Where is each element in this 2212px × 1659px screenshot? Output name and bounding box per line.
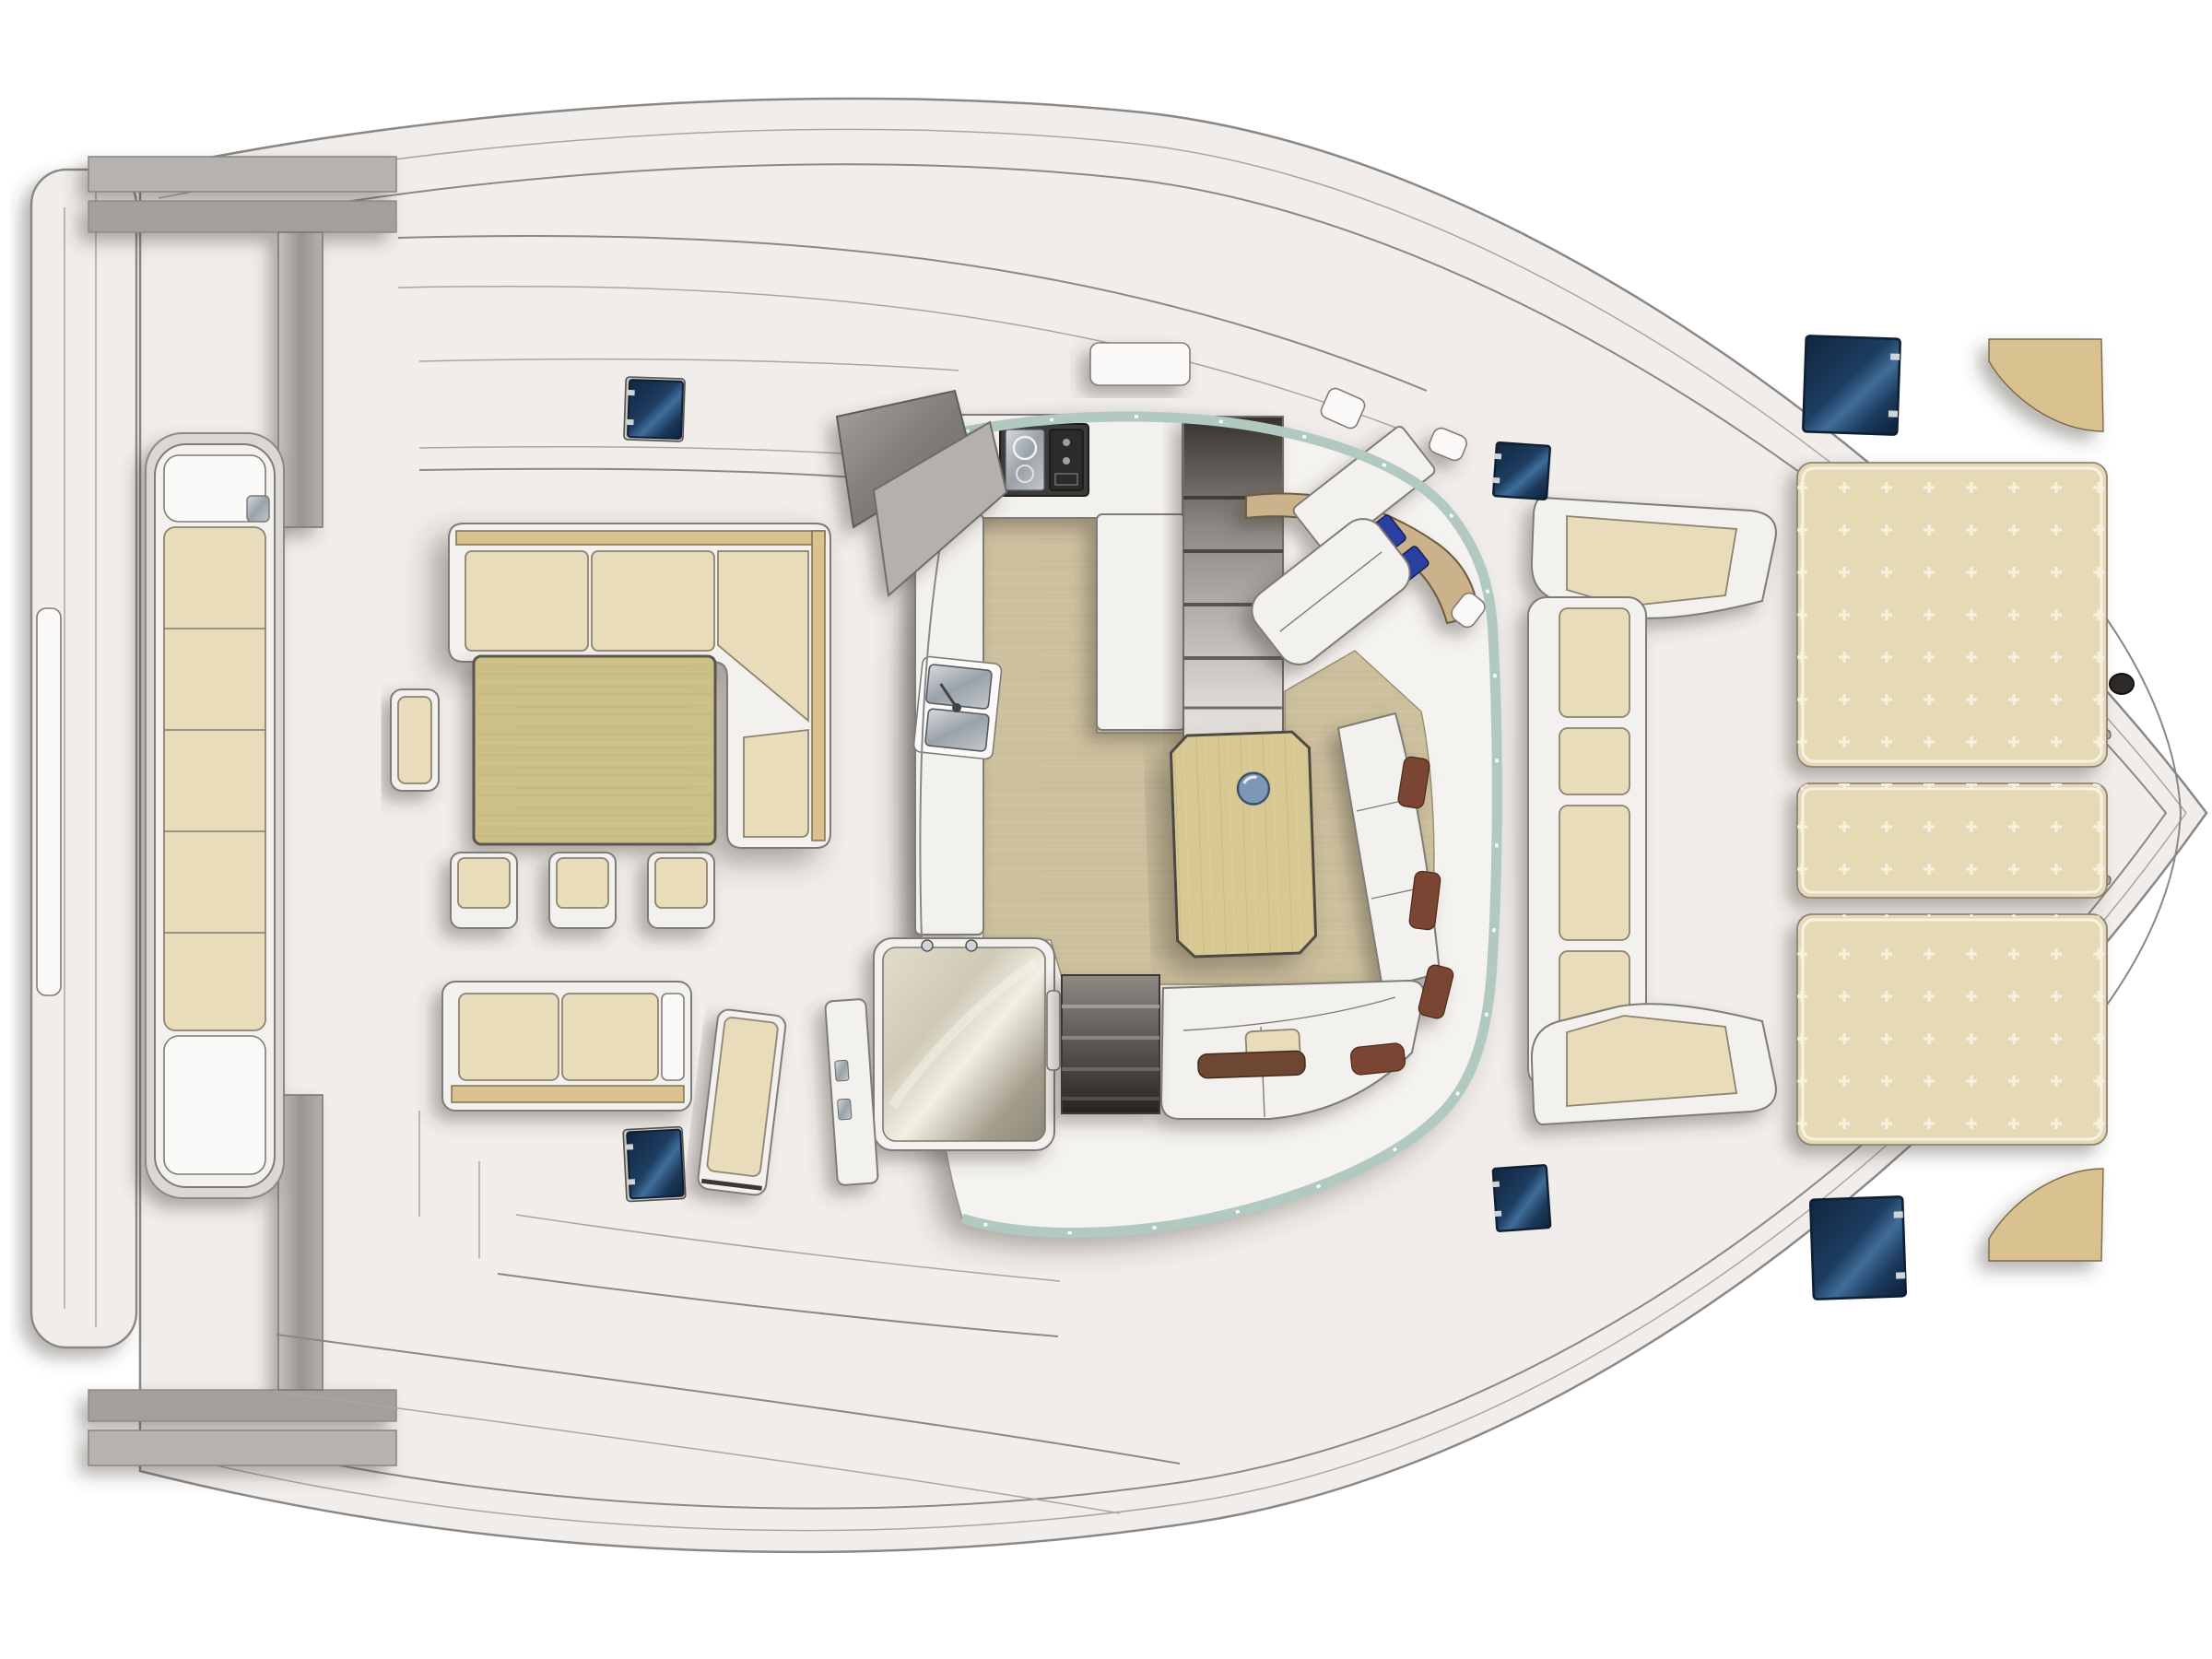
dining-table	[474, 656, 715, 844]
shower-tap	[922, 940, 933, 951]
roof-vent-box	[1090, 343, 1190, 385]
galley-inner-counter	[1097, 514, 1185, 730]
companionway-port	[1183, 417, 1283, 739]
sunpad-buttons	[1797, 783, 2107, 898]
bench-side-cushion	[1559, 806, 1630, 940]
stairwell	[1183, 417, 1283, 739]
hatch-cabin-front-port	[1491, 442, 1550, 500]
davit-beam-inner	[88, 1390, 396, 1421]
hatch-hinge	[1894, 1211, 1903, 1218]
sink-basin	[925, 665, 992, 710]
hatch-foredeck-port	[1803, 335, 1900, 434]
wet-room-door-slit	[1047, 991, 1060, 1070]
transom-bench	[146, 433, 284, 1198]
davit-beam	[88, 1430, 396, 1465]
bow-knob-fitting	[2110, 674, 2134, 694]
bench-top-arm-cushion	[1567, 516, 1736, 606]
davit-post	[278, 232, 323, 527]
sofa-wood-rail	[812, 531, 825, 841]
stool-cushion	[458, 858, 510, 908]
hatch-hinge	[628, 390, 635, 395]
davit-beam-inner	[88, 201, 396, 232]
sink-basin	[925, 709, 990, 752]
hatch-glass	[1493, 1165, 1551, 1231]
aft-sofa-wood-rail	[452, 1086, 684, 1102]
bench-bottom-arm-cushion	[1567, 1016, 1736, 1106]
end-seat	[391, 689, 439, 791]
hatch-glass	[1803, 335, 1900, 434]
door-hinge	[838, 1099, 853, 1120]
hatch-cockpit-starboard	[623, 1126, 686, 1201]
hatch-cabin-front-starboard	[1491, 1165, 1551, 1231]
bench-side-cushion	[1559, 728, 1630, 794]
bench-cushions	[164, 527, 265, 1030]
hatch-hinge	[1494, 453, 1501, 460]
aft-sofa-cushion	[562, 994, 658, 1080]
hatch-hinge	[1896, 1272, 1905, 1278]
corner-wedge-pad	[1989, 1169, 2103, 1261]
bar-stool	[648, 853, 714, 928]
sunpad-buttons	[1797, 914, 2107, 1145]
stairwell	[1062, 975, 1159, 1113]
bench-cushion-stack	[164, 527, 265, 1030]
aft-sofa-armcap	[662, 994, 684, 1080]
hatch-hinge	[1492, 1182, 1500, 1188]
end-seat-cushion	[398, 697, 431, 783]
sunpad-section	[1797, 463, 2107, 767]
bar-stool	[451, 853, 517, 928]
floorplan-stage	[0, 0, 2212, 1659]
sofa-back-cushion	[465, 551, 588, 651]
bench-side-cushion	[1559, 608, 1630, 717]
corner-wedge-pad	[1989, 339, 2103, 431]
bar-stools	[451, 853, 714, 928]
door-hinge	[835, 1060, 850, 1081]
bar-stool	[549, 853, 616, 928]
settee-bolster-long	[1198, 1051, 1306, 1078]
sofa-wood-rail	[456, 531, 825, 545]
sofa-arm-cushion	[744, 730, 808, 837]
hatch-foredeck-starboard	[1810, 1196, 1906, 1299]
hatch-hinge	[628, 1179, 635, 1184]
bench-shower-fitting	[247, 496, 269, 522]
sunpad-section	[1797, 783, 2107, 898]
shower-tap	[966, 940, 977, 951]
sofa-back-cushion	[592, 551, 714, 651]
hatch-hinge	[1890, 353, 1900, 359]
coffee-table-grain	[1172, 734, 1314, 956]
hatch-glass	[1493, 442, 1550, 500]
coffee-table	[1171, 731, 1316, 957]
aft-sofa-cushion	[459, 994, 559, 1080]
companionway-starboard	[1062, 975, 1159, 1113]
stove	[1000, 424, 1088, 496]
stool-cushion	[557, 858, 608, 908]
bench-footrest	[164, 1036, 265, 1174]
sunpad-buttons	[1797, 463, 2107, 767]
platform-ladder-recess	[37, 608, 61, 995]
hatch-cockpit-port	[624, 377, 685, 441]
hatch-glass	[627, 1130, 684, 1199]
swim-platform	[31, 170, 136, 1347]
hatch-glass	[1810, 1196, 1906, 1299]
table-grain	[477, 660, 712, 841]
cockpit-aft-sofa	[442, 982, 691, 1111]
hatch-hinge	[1494, 1211, 1501, 1218]
stool-cushion	[655, 858, 707, 908]
hatch-glass	[628, 380, 683, 439]
davit-post	[278, 1095, 323, 1390]
sunpad-section	[1797, 914, 2107, 1145]
settee-bolster-short	[1350, 1042, 1406, 1076]
stove-knob	[1063, 439, 1070, 446]
hatch-hinge	[1888, 410, 1898, 417]
stove-knob	[1063, 457, 1070, 465]
davit-beam	[88, 157, 396, 192]
hatch-hinge	[1492, 477, 1500, 484]
deck-plan-drawing	[0, 0, 2212, 1659]
hatch-hinge	[626, 1144, 633, 1149]
bow-sunpads	[1797, 339, 2107, 1261]
hatch-hinge	[626, 419, 633, 425]
